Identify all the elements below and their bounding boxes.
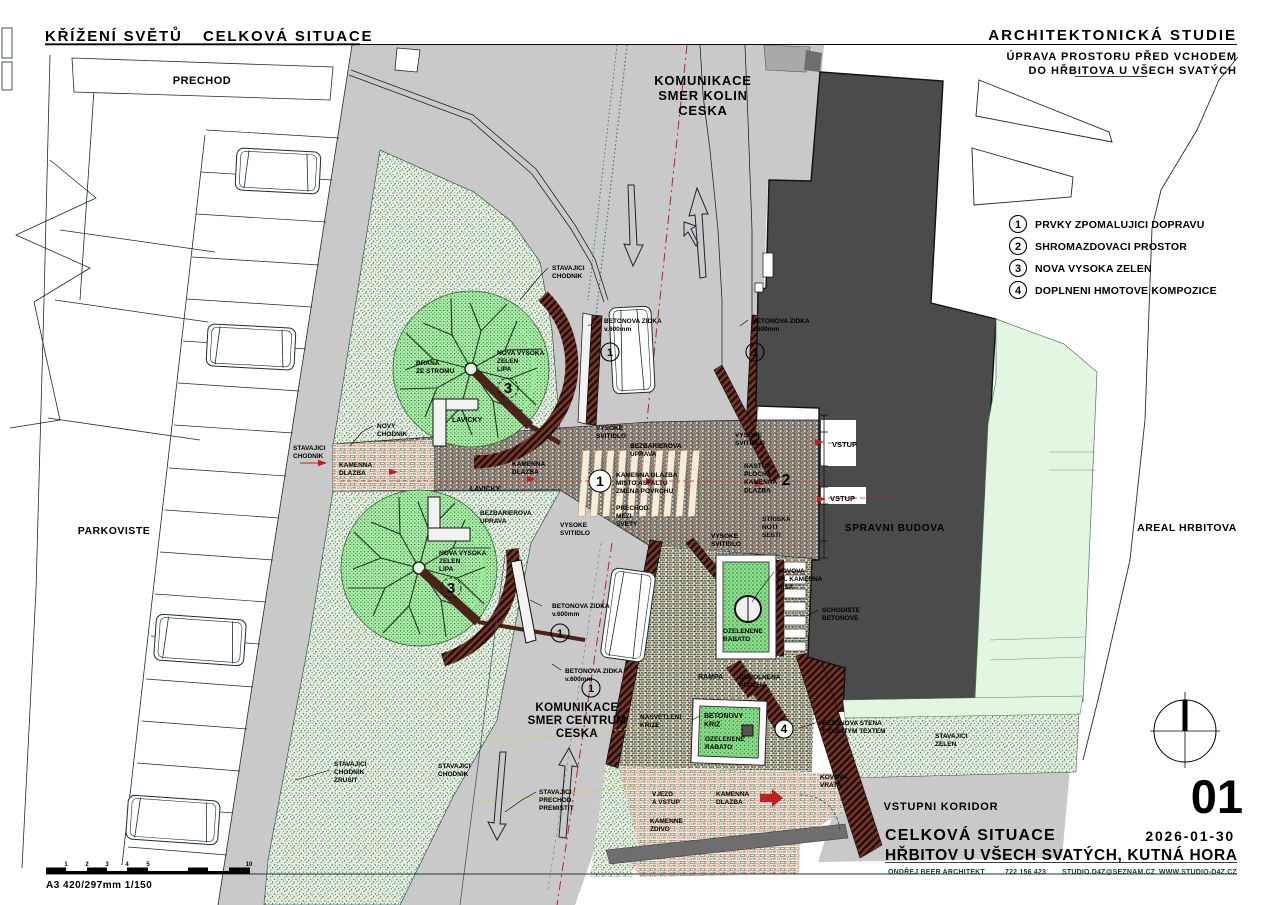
svg-text:PARKOVISTE: PARKOVISTE — [78, 525, 150, 537]
svg-text:S ODLITYM TEXTEM: S ODLITYM TEXTEM — [822, 728, 886, 735]
svg-text:1: 1 — [596, 473, 604, 489]
svg-text:SVITIDLO: SVITIDLO — [596, 433, 626, 440]
svg-text:SMER CENTRUM: SMER CENTRUM — [528, 715, 627, 727]
svg-text:BRANA: BRANA — [416, 360, 440, 367]
svg-text:STAVAJICI: STAVAJICI — [935, 733, 968, 740]
svg-text:v.600mm: v.600mm — [752, 326, 780, 333]
svg-text:LAVICKY: LAVICKY — [470, 486, 501, 493]
svg-text:ZELEN: ZELEN — [497, 358, 519, 365]
svg-text:VYSOKE: VYSOKE — [735, 432, 763, 439]
svg-text:BEZBARIEROVA: BEZBARIEROVA — [480, 510, 532, 517]
svg-text:3: 3 — [1015, 263, 1021, 275]
svg-text:CHODNIK: CHODNIK — [293, 453, 324, 460]
svg-text:OZELENENE: OZELENENE — [723, 628, 763, 635]
svg-text:ONDŘEJ BEER ARCHITEKT: ONDŘEJ BEER ARCHITEKT — [888, 867, 985, 876]
svg-text:KŘÍŽENÍ SVĚTŮ: KŘÍŽENÍ SVĚTŮ — [45, 26, 183, 45]
svg-text:01: 01 — [1191, 770, 1243, 823]
svg-text:UPRAVA: UPRAVA — [630, 451, 657, 458]
svg-text:NASVETLENI: NASVETLENI — [640, 714, 681, 721]
svg-text:MISTO ASFALTU: MISTO ASFALTU — [616, 480, 668, 487]
svg-text:STAVAJICI: STAVAJICI — [293, 445, 326, 452]
svg-text:ZRUSIT: ZRUSIT — [334, 777, 358, 784]
svg-text:v.600mm: v.600mm — [552, 611, 580, 618]
svg-text:ÚPRAVA PROSTORU PŘED VCHODEM: ÚPRAVA PROSTORU PŘED VCHODEM — [1006, 50, 1237, 63]
svg-text:1: 1 — [1015, 219, 1021, 231]
svg-text:STRISKA: STRISKA — [762, 516, 791, 523]
svg-text:CELKOVÁ SITUACE: CELKOVÁ SITUACE — [203, 28, 373, 45]
svg-text:PRECHOD: PRECHOD — [616, 505, 649, 512]
svg-text:VRATA: VRATA — [820, 782, 842, 789]
svg-text:STAVAJICI: STAVAJICI — [539, 789, 572, 796]
svg-text:MEZI: MEZI — [616, 513, 632, 520]
svg-text:RABATO: RABATO — [705, 744, 732, 751]
svg-text:CESKA: CESKA — [678, 103, 728, 118]
svg-text:ZE STROMU: ZE STROMU — [416, 368, 455, 375]
svg-text:PLOCHA: PLOCHA — [744, 471, 772, 478]
svg-text:DLAZBA: DLAZBA — [716, 799, 743, 806]
svg-text:SMER KOLIN: SMER KOLIN — [658, 88, 748, 103]
svg-text:DOPOLNENA: DOPOLNENA — [739, 674, 781, 681]
svg-text:BETONOVA ZIDKA: BETONOVA ZIDKA — [552, 603, 610, 610]
svg-text:CHODNIK: CHODNIK — [552, 273, 583, 280]
svg-text:NOVA VYSOKA: NOVA VYSOKA — [497, 350, 545, 357]
svg-text:BETONOVA ZIDKA: BETONOVA ZIDKA — [604, 318, 662, 325]
svg-text:NOVA VYSOKA: NOVA VYSOKA — [439, 550, 487, 557]
svg-text:4: 4 — [1015, 285, 1022, 297]
svg-text:BETONOVA ZIDKA: BETONOVA ZIDKA — [565, 668, 623, 675]
svg-text:LIPA: LIPA — [439, 566, 454, 573]
svg-text:BETONOVY: BETONOVY — [704, 713, 743, 720]
svg-text:SVITIDLO: SVITIDLO — [735, 440, 765, 447]
svg-text:BETONOVA STENA: BETONOVA STENA — [822, 720, 882, 727]
svg-text:2: 2 — [1015, 241, 1021, 253]
svg-text:VYSOKE: VYSOKE — [596, 425, 624, 432]
svg-text:UPRAVA: UPRAVA — [480, 518, 507, 525]
svg-text:SPRAVNI BUDOVA: SPRAVNI BUDOVA — [845, 523, 945, 534]
svg-text:PRVKY ZPOMALUJICI DOPRAVU: PRVKY ZPOMALUJICI DOPRAVU — [1035, 219, 1205, 231]
svg-text:ZDIVO: ZDIVO — [650, 826, 670, 833]
svg-text:SHROMAZDOVACI PROSTOR: SHROMAZDOVACI PROSTOR — [1035, 241, 1187, 253]
svg-text:KOVOVA: KOVOVA — [820, 774, 848, 781]
svg-text:3: 3 — [447, 580, 455, 597]
svg-text:SVITIDLO: SVITIDLO — [711, 541, 741, 548]
svg-text:SVETY: SVETY — [616, 521, 638, 528]
svg-text:SESTI: SESTI — [762, 532, 781, 539]
svg-text:STAVAJICI: STAVAJICI — [438, 763, 471, 770]
svg-text:BETONOVE: BETONOVE — [822, 615, 859, 622]
svg-text:KAMENNA: KAMENNA — [512, 461, 546, 468]
svg-text:10: 10 — [246, 862, 253, 868]
svg-text:NOTI: NOTI — [762, 524, 778, 531]
svg-text:DOPLNENI HMOTOVE KOMPOZICE: DOPLNENI HMOTOVE KOMPOZICE — [1035, 285, 1217, 297]
svg-text:KOMUNIKACE: KOMUNIKACE — [535, 702, 618, 714]
svg-text:KAMENNA: KAMENNA — [716, 791, 750, 798]
svg-text:AREAL HRBITOVA: AREAL HRBITOVA — [1137, 522, 1237, 534]
svg-text:LIPA: LIPA — [497, 366, 512, 373]
svg-text:BEZBARIEROVA: BEZBARIEROVA — [630, 443, 682, 450]
svg-text:PRECHOD: PRECHOD — [539, 797, 572, 804]
svg-text:NOVY: NOVY — [377, 423, 396, 430]
svg-text:KAMENNE: KAMENNE — [650, 818, 684, 825]
svg-text:EX. KAMENNA: EX. KAMENNA — [777, 576, 823, 583]
svg-text:A3 420/297mm 1/150: A3 420/297mm 1/150 — [46, 880, 152, 891]
svg-text:CESKA: CESKA — [556, 728, 598, 740]
svg-text:1: 1 — [557, 628, 563, 640]
svg-text:PLOCHA: PLOCHA — [739, 682, 767, 689]
svg-text:NASTUP: NASTUP — [744, 463, 771, 470]
svg-text:BETONOVA ZIDKA: BETONOVA ZIDKA — [752, 318, 810, 325]
svg-text:VYSOKE: VYSOKE — [711, 533, 739, 540]
svg-text:SVITIDLO: SVITIDLO — [560, 530, 590, 537]
svg-text:KRIZE: KRIZE — [640, 722, 660, 729]
svg-text:CELKOVÁ SITUACE: CELKOVÁ SITUACE — [885, 825, 1056, 844]
svg-text:LAVICKY: LAVICKY — [452, 417, 483, 424]
svg-text:CHODNIK: CHODNIK — [334, 769, 365, 776]
svg-text:1: 1 — [588, 683, 594, 695]
svg-text:HŘBITOV U VŠECH SVATÝCH, KUTNÁ: HŘBITOV U VŠECH SVATÝCH, KUTNÁ HORA — [885, 846, 1238, 864]
svg-text:ZMENA POVRCHU: ZMENA POVRCHU — [616, 488, 673, 495]
svg-text:NOVA VYSOKA ZELEN: NOVA VYSOKA ZELEN — [1035, 263, 1152, 275]
svg-text:VSTUP: VSTUP — [830, 494, 855, 503]
svg-text:1: 1 — [752, 347, 758, 359]
svg-text:PREMISTIT: PREMISTIT — [539, 805, 574, 812]
svg-text:VSTUPNI KORIDOR: VSTUPNI KORIDOR — [884, 801, 999, 813]
svg-text:STAVAJICI: STAVAJICI — [334, 761, 367, 768]
svg-text:CHODNIK: CHODNIK — [377, 431, 408, 438]
svg-text:ZELEN: ZELEN — [439, 558, 461, 565]
svg-text:DO HŘBITOVA U VŠECH SVATÝCH: DO HŘBITOVA U VŠECH SVATÝCH — [1028, 64, 1237, 77]
svg-text:CHODNIK: CHODNIK — [438, 771, 469, 778]
svg-text:VJEZD: VJEZD — [652, 791, 673, 798]
svg-text:STUDIO.D4Z@SEZNAM.CZ: STUDIO.D4Z@SEZNAM.CZ — [1062, 869, 1156, 876]
svg-text:DLAZBA: DLAZBA — [339, 470, 366, 477]
svg-text:ARCHITEKTONICKÁ STUDIE: ARCHITEKTONICKÁ STUDIE — [988, 27, 1237, 44]
svg-text:KOVOVA: KOVOVA — [777, 568, 805, 575]
svg-text:v.600mm: v.600mm — [604, 326, 632, 333]
svg-text:DLAZBA: DLAZBA — [512, 469, 539, 476]
svg-text:VSTUP: VSTUP — [832, 440, 857, 449]
svg-text:KAMENNA DLAZBA: KAMENNA DLAZBA — [616, 472, 678, 479]
svg-text:KRIZ: KRIZ — [704, 722, 721, 729]
svg-text:RAMPA: RAMPA — [698, 674, 723, 681]
svg-text:722 156 423: 722 156 423 — [1005, 869, 1046, 876]
svg-text:DLAZBA: DLAZBA — [744, 487, 771, 494]
svg-text:PRECHOD: PRECHOD — [173, 75, 232, 87]
svg-text:3: 3 — [504, 380, 512, 397]
svg-text:ZELEN: ZELEN — [935, 741, 957, 748]
svg-text:MISA: MISA — [777, 584, 794, 591]
svg-text:KOMUNIKACE: KOMUNIKACE — [654, 73, 752, 88]
svg-text:OZELENENE: OZELENENE — [705, 736, 745, 743]
svg-text:RABATO: RABATO — [723, 636, 750, 643]
svg-text:VYSOKE: VYSOKE — [560, 522, 588, 529]
svg-text:A VSTUP: A VSTUP — [652, 799, 681, 806]
svg-text:WWW.STUDIO-D4Z.CZ: WWW.STUDIO-D4Z.CZ — [1159, 869, 1238, 876]
svg-text:STAVAJICI: STAVAJICI — [552, 265, 585, 272]
svg-text:SCHODISTE: SCHODISTE — [822, 607, 861, 614]
svg-text:KAMENNA: KAMENNA — [339, 462, 373, 469]
svg-text:2026-01-30: 2026-01-30 — [1145, 828, 1235, 844]
svg-text:2: 2 — [782, 472, 791, 489]
svg-text:4: 4 — [781, 722, 788, 736]
svg-text:1: 1 — [607, 347, 613, 359]
svg-text:KAMENNA: KAMENNA — [744, 479, 778, 486]
